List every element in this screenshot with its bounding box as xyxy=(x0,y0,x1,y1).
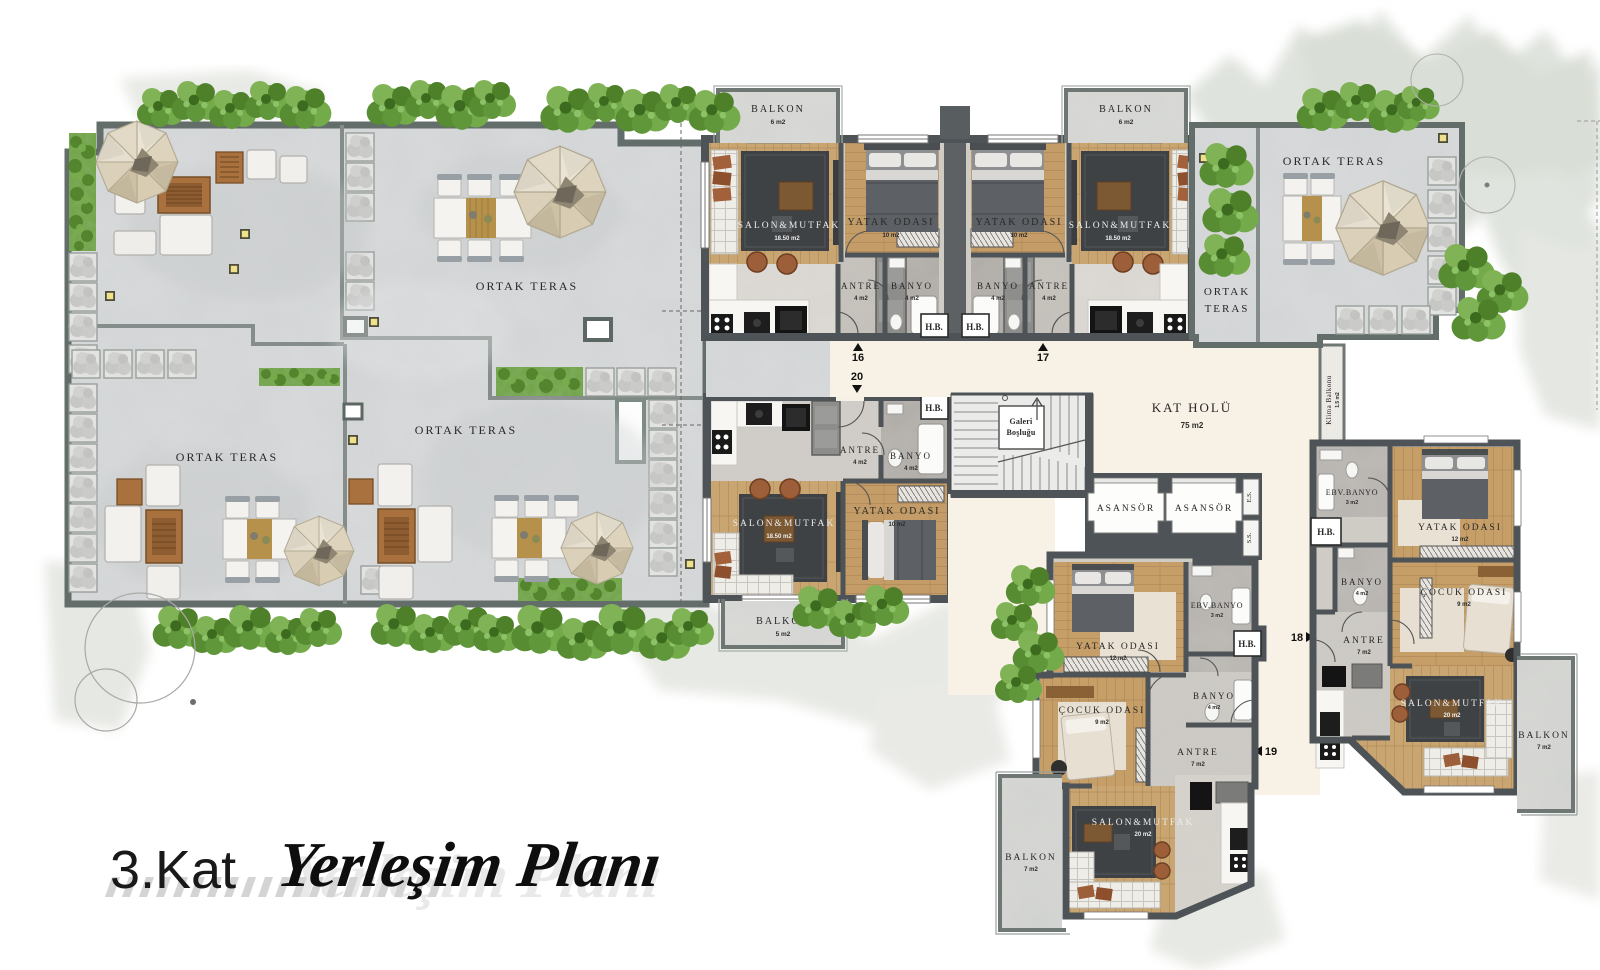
svg-text:YATAK ODASI: YATAK ODASI xyxy=(1076,642,1160,652)
svg-text:SALON&MUTFAK: SALON&MUTFAK xyxy=(738,221,840,231)
svg-text:ANTRE: ANTRE xyxy=(1177,748,1219,758)
svg-text:9 m2: 9 m2 xyxy=(1095,720,1109,726)
svg-text:YATAK ODASI: YATAK ODASI xyxy=(853,506,940,517)
svg-text:1.5 m2: 1.5 m2 xyxy=(1335,392,1341,408)
svg-text:ÇOCUK ODASI: ÇOCUK ODASI xyxy=(1059,706,1146,716)
svg-text:EBV.BANYO: EBV.BANYO xyxy=(1191,601,1244,610)
svg-text:5 m2: 5 m2 xyxy=(776,631,791,638)
svg-text:BANYO: BANYO xyxy=(890,451,932,461)
svg-text:3.Kat: 3.Kat xyxy=(110,840,236,900)
svg-text:7 m2: 7 m2 xyxy=(1024,867,1038,873)
svg-text:10 m2: 10 m2 xyxy=(1010,233,1028,239)
svg-text:ASANSÖR: ASANSÖR xyxy=(1097,502,1155,514)
svg-text:EBV.BANYO: EBV.BANYO xyxy=(1326,488,1379,497)
svg-text:BANYO: BANYO xyxy=(891,281,933,291)
svg-text:4 m2: 4 m2 xyxy=(905,296,919,302)
svg-text:YATAK ODASI: YATAK ODASI xyxy=(847,217,934,228)
svg-text:ÇOCUK ODASI: ÇOCUK ODASI xyxy=(1421,588,1508,598)
svg-text:4 m2: 4 m2 xyxy=(991,296,1005,302)
svg-text:10 m2: 10 m2 xyxy=(882,233,900,239)
svg-text:S.S.: S.S. xyxy=(1246,532,1253,543)
svg-text:BANYO: BANYO xyxy=(977,281,1019,291)
svg-text:ORTAK TERAS: ORTAK TERAS xyxy=(176,450,278,464)
svg-text:20: 20 xyxy=(851,371,863,383)
svg-text:BALKON: BALKON xyxy=(1518,731,1570,741)
svg-text:ANTRE: ANTRE xyxy=(840,445,880,455)
svg-text:18.50 m2: 18.50 m2 xyxy=(774,236,800,242)
svg-text:H.B.: H.B. xyxy=(1317,527,1335,537)
svg-text:ANTRE: ANTRE xyxy=(1343,636,1385,646)
svg-text:TERAS: TERAS xyxy=(1205,303,1250,315)
svg-text:H.B.: H.B. xyxy=(925,403,943,413)
svg-text:20 m2: 20 m2 xyxy=(1134,832,1152,838)
svg-text:BANYO: BANYO xyxy=(1193,691,1235,701)
svg-text:SALON&MUTFAK: SALON&MUTFAK xyxy=(1092,818,1194,828)
svg-text:4 m2: 4 m2 xyxy=(1356,591,1369,597)
svg-text:75 m2: 75 m2 xyxy=(1181,421,1204,430)
svg-text:7 m2: 7 m2 xyxy=(1537,745,1551,751)
svg-text:6 m2: 6 m2 xyxy=(1119,119,1134,126)
svg-text:SALON&MUTFAK: SALON&MUTFAK xyxy=(1069,221,1171,231)
svg-text:ANTRE: ANTRE xyxy=(841,281,881,291)
svg-text:Klima Balkonu: Klima Balkonu xyxy=(1325,375,1333,424)
svg-text:BALKON: BALKON xyxy=(1005,853,1057,863)
svg-text:4 m2: 4 m2 xyxy=(1208,705,1221,711)
svg-text:12 m2: 12 m2 xyxy=(1451,537,1469,543)
svg-text:YATAK ODASI: YATAK ODASI xyxy=(975,217,1062,228)
svg-text:ORTAK TERAS: ORTAK TERAS xyxy=(476,279,578,293)
svg-text:20 m2: 20 m2 xyxy=(1443,713,1461,719)
svg-text:4 m2: 4 m2 xyxy=(904,466,918,472)
svg-text:BALKON: BALKON xyxy=(751,104,805,115)
svg-text:16: 16 xyxy=(852,352,864,364)
svg-text:YATAK ODASI: YATAK ODASI xyxy=(1418,523,1502,533)
svg-text:3 m2: 3 m2 xyxy=(1211,613,1224,619)
svg-text:Galeri: Galeri xyxy=(1010,417,1034,426)
svg-text:H.B.: H.B. xyxy=(966,322,984,332)
svg-text:4 m2: 4 m2 xyxy=(1042,296,1056,302)
svg-text:12 m2: 12 m2 xyxy=(1109,656,1127,662)
svg-text:4 m2: 4 m2 xyxy=(853,460,867,466)
svg-text:7 m2: 7 m2 xyxy=(1191,762,1205,768)
svg-text:18: 18 xyxy=(1291,632,1303,644)
svg-text:H.B.: H.B. xyxy=(1238,639,1256,649)
svg-text:ORTAK: ORTAK xyxy=(1204,286,1250,298)
svg-text:7 m2: 7 m2 xyxy=(1357,650,1371,656)
svg-text:9 m2: 9 m2 xyxy=(1457,602,1471,608)
svg-text:Yerleşim Planı: Yerleşim Planı xyxy=(274,829,666,900)
svg-text:KAT HOLÜ: KAT HOLÜ xyxy=(1152,400,1232,415)
svg-text:BANYO: BANYO xyxy=(1341,577,1383,587)
svg-text:6 m2: 6 m2 xyxy=(771,119,786,126)
svg-text:18.50 m2: 18.50 m2 xyxy=(1105,236,1131,242)
svg-text:17: 17 xyxy=(1037,352,1049,364)
svg-text:Boşluğu: Boşluğu xyxy=(1007,428,1036,437)
svg-text:BALKON: BALKON xyxy=(1099,104,1153,115)
svg-text:SALON&MUTFAK: SALON&MUTFAK xyxy=(1401,699,1503,709)
svg-text:10 m2: 10 m2 xyxy=(888,522,906,528)
svg-text:ANTRE: ANTRE xyxy=(1029,281,1069,291)
svg-text:ORTAK TERAS: ORTAK TERAS xyxy=(1283,154,1385,168)
svg-text:H.B.: H.B. xyxy=(925,322,943,332)
svg-text:19: 19 xyxy=(1265,746,1277,758)
svg-text:3 m2: 3 m2 xyxy=(1346,500,1359,506)
svg-text:4 m2: 4 m2 xyxy=(854,296,868,302)
svg-text:SALON&MUTFAK: SALON&MUTFAK xyxy=(733,519,835,529)
svg-text:E.S.: E.S. xyxy=(1246,491,1253,502)
svg-text:ORTAK TERAS: ORTAK TERAS xyxy=(415,423,517,437)
svg-text:ASANSÖR: ASANSÖR xyxy=(1175,502,1233,514)
svg-text:18.50 m2: 18.50 m2 xyxy=(766,534,792,540)
